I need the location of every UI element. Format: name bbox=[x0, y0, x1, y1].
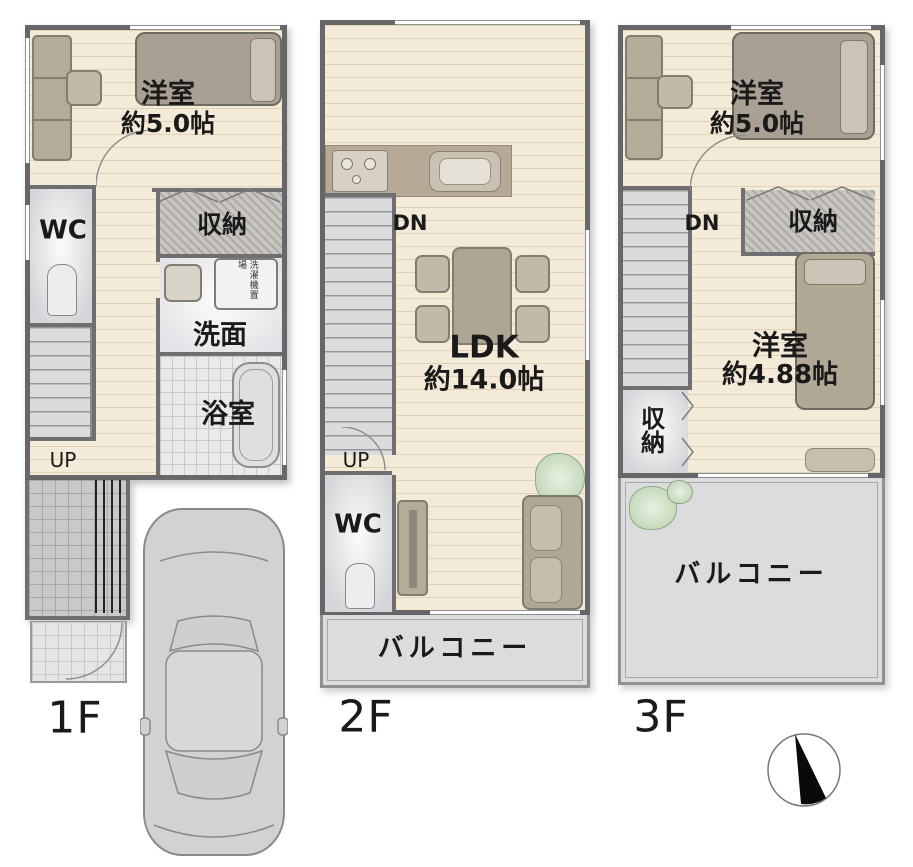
balcony-3f: バルコニー bbox=[618, 478, 885, 685]
room-label-wc-2f: WC bbox=[334, 510, 382, 539]
tv-board bbox=[397, 500, 428, 596]
pillow bbox=[250, 38, 276, 102]
entrance-steps bbox=[95, 480, 126, 613]
burner-icon bbox=[364, 158, 376, 170]
kitchen-counter bbox=[325, 145, 512, 197]
wall bbox=[325, 193, 392, 197]
wall bbox=[30, 185, 96, 189]
floor-label-3f: 3F bbox=[633, 692, 688, 743]
room-label-wc-1f: WC bbox=[39, 216, 87, 245]
toilet bbox=[47, 264, 77, 316]
room-label-balcony-2f: バルコニー bbox=[378, 634, 532, 663]
window bbox=[585, 230, 590, 360]
porch bbox=[30, 621, 127, 683]
wall bbox=[160, 352, 282, 356]
room-label-bedroom-back: 洋室 約4.88帖 bbox=[722, 330, 838, 390]
room-label-closet-1f: 収納 bbox=[197, 211, 247, 239]
window bbox=[880, 65, 885, 160]
room-label-ldk: LDK 約14.0帖 bbox=[424, 331, 545, 396]
tv bbox=[409, 510, 417, 588]
chair bbox=[515, 255, 550, 293]
sofa bbox=[522, 495, 583, 610]
sink bbox=[429, 151, 501, 192]
window bbox=[130, 25, 280, 30]
toilet bbox=[345, 563, 375, 609]
pillow bbox=[840, 40, 868, 134]
window bbox=[880, 300, 885, 405]
sink-basin bbox=[439, 158, 491, 185]
room-label-bedroom-front: 洋室 約5.0帖 bbox=[710, 80, 804, 138]
compass-icon bbox=[765, 731, 843, 809]
entrance-tile bbox=[25, 480, 130, 620]
stairs bbox=[623, 190, 688, 386]
burner-icon bbox=[341, 158, 353, 170]
plant bbox=[667, 480, 693, 504]
floor-label-2f: 2F bbox=[338, 692, 393, 743]
window bbox=[25, 38, 30, 163]
folding-door-icon bbox=[679, 390, 697, 474]
desk-table bbox=[66, 70, 102, 106]
pillow bbox=[804, 259, 866, 285]
burner-icon bbox=[352, 175, 361, 184]
stairs-down-label-2f: DN bbox=[392, 212, 427, 236]
room-label-bath: 浴室 bbox=[201, 400, 255, 430]
wall bbox=[30, 323, 96, 327]
room-label-balcony-3f: バルコニー bbox=[674, 560, 828, 589]
sofa-cushion bbox=[530, 557, 562, 603]
stairs bbox=[325, 197, 392, 455]
folding-door-icon bbox=[745, 184, 875, 202]
room-label-bedroom-1f: 洋室 約5.0帖 bbox=[121, 80, 215, 138]
desk-table bbox=[657, 75, 693, 109]
floor-plan-2f: DN LDK 約14.0帖 UP WC bbox=[320, 20, 590, 615]
door-arc bbox=[690, 135, 747, 192]
sofa-cushion bbox=[530, 505, 562, 551]
window bbox=[282, 370, 287, 465]
car-icon bbox=[140, 503, 288, 861]
washing-machine-space: 洗濯機置場 bbox=[214, 258, 278, 310]
chair bbox=[415, 255, 450, 293]
floor-label-1f: 1F bbox=[47, 693, 102, 744]
washbasin bbox=[164, 264, 202, 302]
wall bbox=[30, 437, 96, 441]
stairs-up-label-2f: UP bbox=[343, 449, 370, 471]
stairs-down-label-3f: DN bbox=[684, 212, 719, 236]
floor-plan-1f: 洗濯機置場 洋室 約5.0帖 WC 収納 洗面 浴室 UP bbox=[25, 25, 287, 480]
room-label-closet-side: 収納 bbox=[637, 406, 664, 454]
wall bbox=[623, 186, 688, 190]
wall bbox=[392, 475, 396, 612]
folding-door-icon bbox=[156, 186, 282, 204]
stairs bbox=[30, 327, 92, 437]
window bbox=[731, 25, 871, 30]
wall bbox=[156, 298, 160, 475]
bench bbox=[805, 448, 875, 472]
window bbox=[25, 205, 30, 260]
door-arc bbox=[96, 130, 153, 187]
room-label-washroom: 洗面 bbox=[193, 321, 247, 351]
window bbox=[395, 20, 580, 25]
door-arc bbox=[66, 623, 124, 681]
floor-plan-3f: 洋室 約5.0帖 DN 収納 洋室 約4.88帖 収納 bbox=[618, 25, 885, 478]
floor-plan-sheet: 洗濯機置場 洋室 約5.0帖 WC 収納 洗面 浴室 UP bbox=[0, 0, 913, 867]
washing-machine-label: 洗濯機置場 bbox=[234, 260, 257, 308]
stove bbox=[332, 150, 388, 192]
wall bbox=[92, 185, 96, 441]
room-label-closet-front: 収納 bbox=[788, 208, 838, 236]
balcony-2f: バルコニー bbox=[320, 615, 590, 688]
stairs-up-label-1f: UP bbox=[50, 449, 77, 471]
